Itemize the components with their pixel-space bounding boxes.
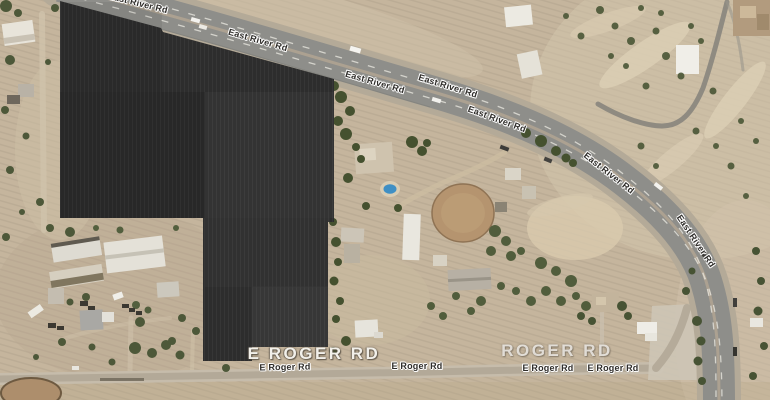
building-white-long <box>402 214 421 261</box>
building-shed-4 <box>495 202 507 212</box>
building-shed <box>18 84 34 97</box>
building-tan-house-right <box>592 293 620 313</box>
swimming-pool <box>384 184 397 194</box>
building-gray-house <box>448 268 492 291</box>
vehicle <box>733 298 737 307</box>
satellite-basemap <box>0 0 770 400</box>
building-house-topleft <box>2 20 36 46</box>
building-mid-1 <box>341 227 365 242</box>
building-shed-dark <box>7 95 20 104</box>
building-trailer-midbottom-2 <box>374 332 383 338</box>
building-shed-3 <box>522 186 536 199</box>
building-shed-2 <box>505 168 521 180</box>
vehicle <box>733 347 737 356</box>
building-white-right-top <box>676 45 699 74</box>
building-mid-2 <box>344 244 360 263</box>
building-white-edge <box>750 318 763 327</box>
building-compound-topright <box>733 0 770 36</box>
building-small-1 <box>433 255 447 266</box>
building-house-top-1 <box>504 5 533 28</box>
building-white-small-right <box>645 333 657 341</box>
satellite-map-canvas[interactable]: East River RdEast River RdEast River RdE… <box>0 0 770 400</box>
building-white-trailer-right <box>637 322 657 334</box>
